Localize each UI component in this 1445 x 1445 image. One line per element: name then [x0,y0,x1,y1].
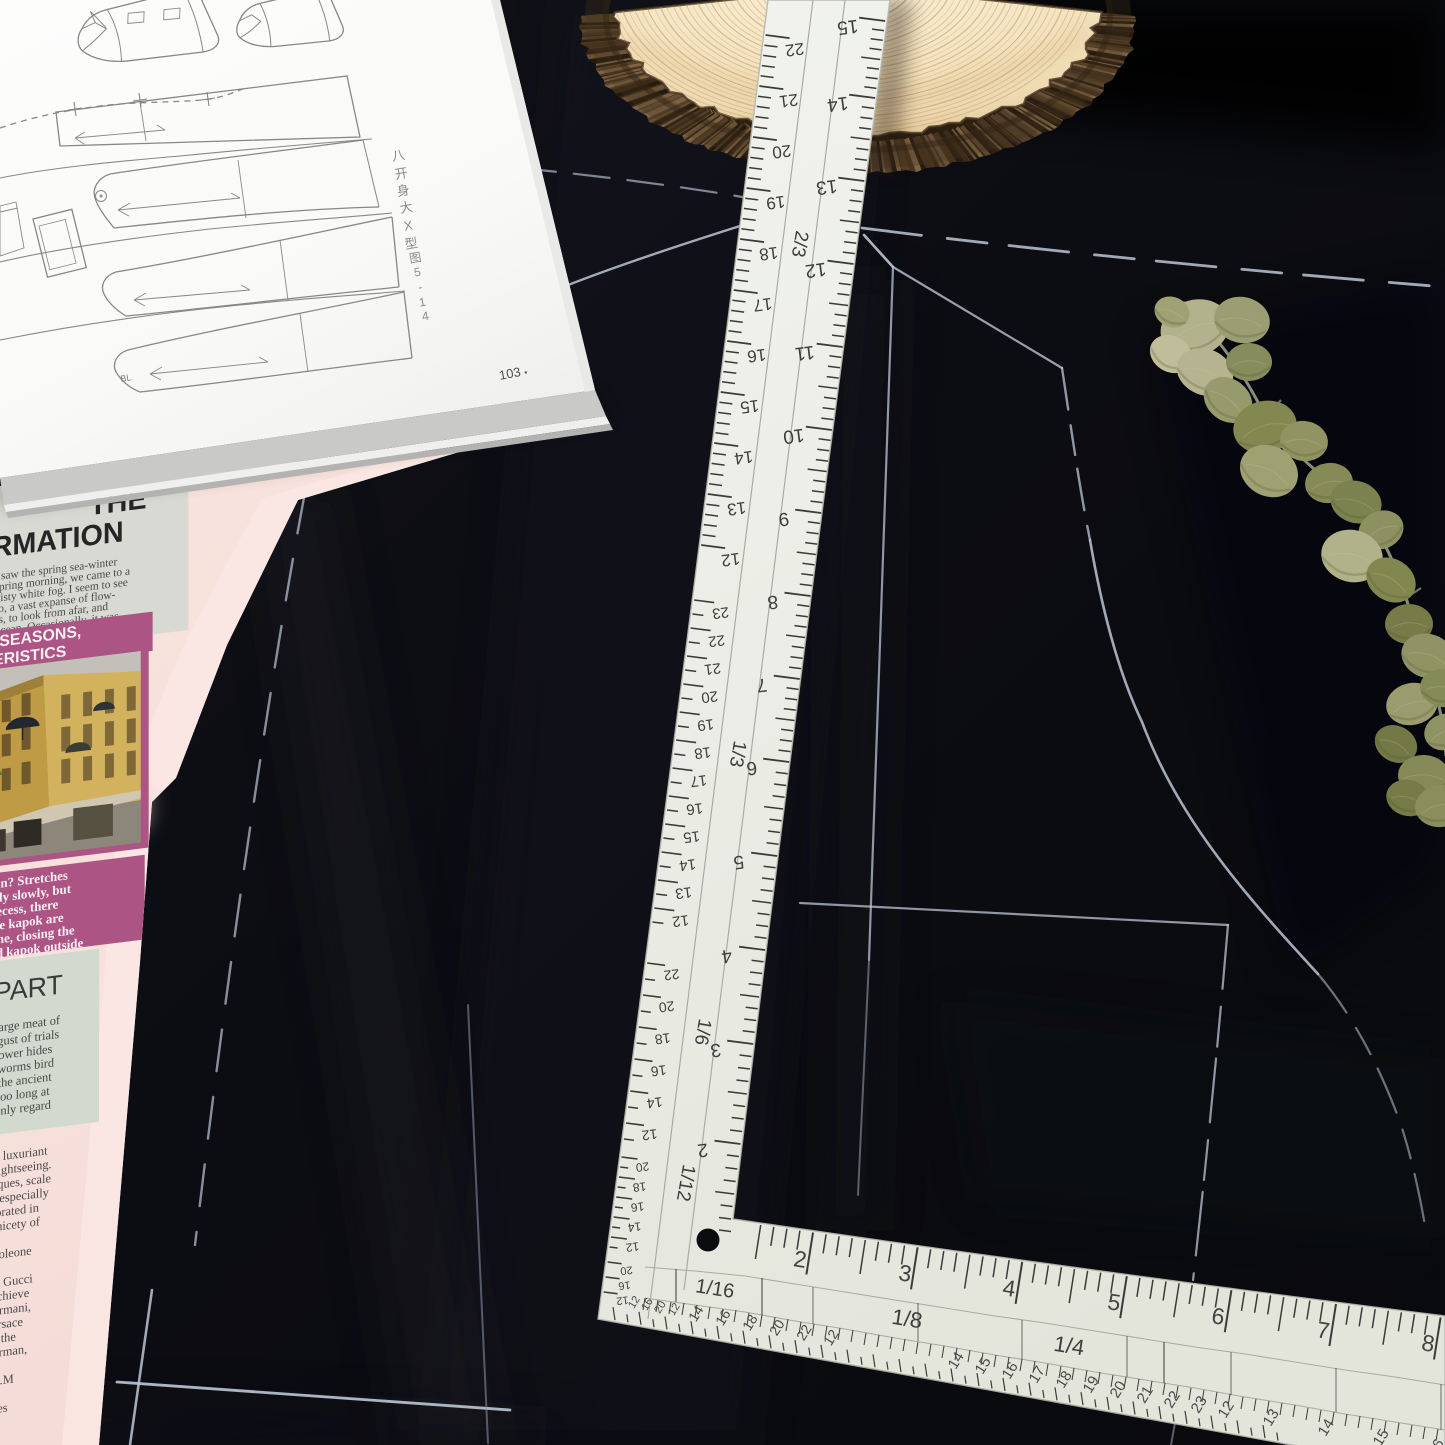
svg-text:15: 15 [739,396,760,417]
svg-text:20: 20 [635,1159,650,1175]
svg-text:13: 13 [674,883,693,902]
svg-text:15: 15 [682,827,701,846]
svg-text:16: 16 [650,1062,668,1080]
svg-text:17: 17 [689,771,708,790]
svg-text:14: 14 [825,92,849,116]
svg-text:14: 14 [627,1219,642,1235]
svg-text:1/8: 1/8 [890,1304,924,1333]
svg-text:22: 22 [707,631,726,650]
svg-text:14: 14 [678,855,697,874]
svg-text:16: 16 [630,1199,645,1215]
svg-text:14: 14 [646,1094,664,1112]
svg-text:18: 18 [632,1179,647,1195]
svg-text:20: 20 [620,1263,634,1276]
svg-text:16: 16 [618,1278,632,1291]
svg-text:开: 开 [394,165,409,182]
svg-text:15: 15 [836,15,860,39]
svg-text:21: 21 [703,659,722,678]
svg-text:14: 14 [733,447,754,468]
svg-text:12: 12 [625,1239,640,1255]
svg-text:大: 大 [399,199,414,216]
svg-text:型: 型 [404,235,419,252]
svg-text:12: 12 [671,911,690,930]
svg-text:23: 23 [711,603,730,622]
svg-text:BL: BL [120,372,133,384]
svg-text:20: 20 [700,687,719,706]
svg-text:19: 19 [765,192,786,213]
svg-text:12: 12 [720,549,741,570]
svg-text:18: 18 [654,1030,672,1048]
svg-text:16: 16 [746,345,767,366]
svg-text:20: 20 [658,998,676,1016]
svg-text:20: 20 [771,141,792,162]
svg-text:12: 12 [641,1126,659,1144]
svg-text:17: 17 [752,294,773,315]
svg-text:八: 八 [391,147,406,164]
svg-text:16: 16 [685,799,704,818]
svg-text:21: 21 [778,90,799,111]
svg-text:1/4: 1/4 [1052,1331,1086,1360]
svg-text:13: 13 [815,175,839,199]
svg-text:11: 11 [794,341,816,364]
svg-text:图: 图 [408,250,422,266]
svg-text:10: 10 [782,424,806,448]
svg-text:22: 22 [784,39,805,60]
svg-text:12: 12 [804,258,828,282]
svg-text:13: 13 [726,498,747,519]
svg-text:22: 22 [663,966,681,984]
svg-text:身: 身 [396,182,411,199]
svg-text:19: 19 [696,715,715,734]
svg-text:18: 18 [693,743,712,762]
svg-text:18: 18 [758,243,779,264]
